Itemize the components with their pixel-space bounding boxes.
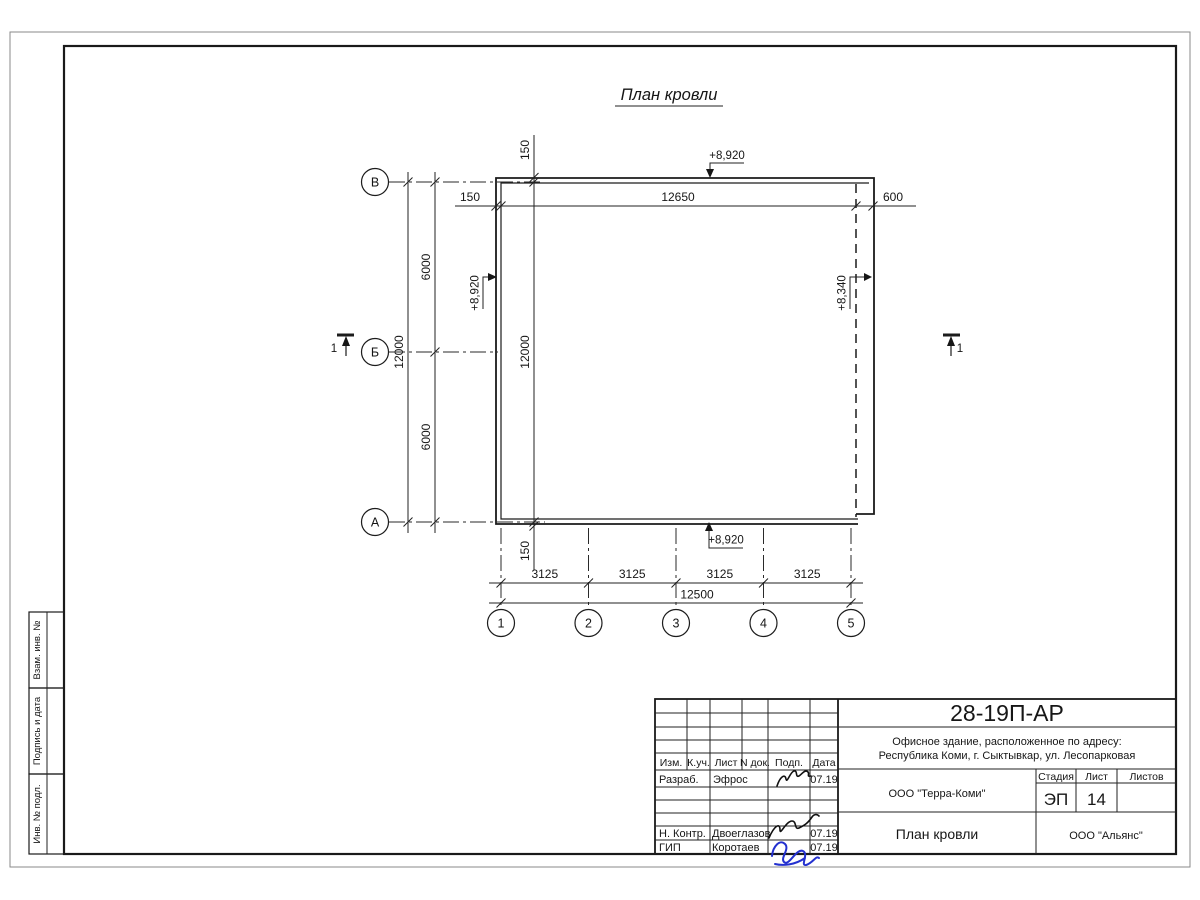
tb-name-efros: Эфрос — [713, 774, 748, 786]
tb-project-line2: Республика Коми, г. Сыктывкар, ул. Лесоп… — [879, 750, 1136, 762]
tb-org-customer: ООО "Альянс" — [1069, 830, 1143, 842]
drawing-sheet: Взам. инв. № Подпись и дата Инв. № подл.… — [0, 0, 1200, 900]
axis-label-b: Б — [371, 346, 379, 360]
dim-12000-inner: 12000 — [518, 335, 532, 369]
axis-grid-lines — [389, 182, 851, 609]
tb-date-nkontr: 07.19 — [810, 828, 838, 840]
dim-12000-total: 12000 — [392, 335, 406, 369]
title-block: Изм. К.уч. Лист N док. Подп. Дата Разраб… — [655, 699, 1176, 865]
dim-150-top: 150 — [460, 190, 480, 204]
dim-12500: 12500 — [680, 588, 714, 602]
dim-150-inner-top: 150 — [518, 140, 532, 160]
axis-label-2: 2 — [585, 617, 592, 631]
elev-leader-right — [850, 277, 867, 309]
dim-3125-3: 3125 — [706, 567, 733, 581]
axis-label-5: 5 — [848, 617, 855, 631]
roof-outline — [496, 178, 874, 524]
tb-date-gip: 07.19 — [810, 842, 838, 854]
elev-leader-top — [710, 163, 744, 176]
tb-sheets-label: Листов — [1129, 771, 1164, 783]
axis-label-1: 1 — [498, 617, 505, 631]
drawing-canvas: Взам. инв. № Подпись и дата Инв. № подл.… — [0, 0, 1200, 900]
side-label-vzam: Взам. инв. № — [32, 621, 43, 680]
tb-sheet-name: План кровли — [896, 826, 978, 842]
arrow-up-icon — [947, 336, 955, 346]
arrow-up-icon — [342, 336, 350, 346]
dim-600: 600 — [883, 190, 903, 204]
tb-doc-number: 28-19П-АР — [950, 700, 1064, 726]
elev-top: +8,920 — [709, 150, 745, 162]
tb-role-nkontr: Н. Контр. — [659, 828, 706, 840]
tb-date-razrab: 07.19 — [810, 774, 838, 786]
tb-name-dvoeglazov: Двоеглазов — [712, 828, 771, 840]
dim-line-bottom-total — [489, 599, 863, 608]
elev-leader-left — [483, 277, 492, 309]
side-attribute-boxes: Взам. инв. № Подпись и дата Инв. № подл. — [29, 612, 64, 854]
elev-right: +8,340 — [837, 275, 849, 311]
elev-bottom: +8,920 — [708, 535, 744, 547]
tb-stage-label: Стадия — [1038, 771, 1074, 783]
tb-name-korotaev: Коротаев — [712, 842, 760, 854]
axis-label-v: В — [371, 176, 379, 190]
drawing-title: План кровли — [615, 86, 723, 106]
tb-role-razrab: Разраб. — [659, 774, 699, 786]
section-marks: 1 1 — [331, 335, 963, 356]
arrow-right-icon — [864, 273, 872, 281]
inner-border — [64, 46, 1176, 854]
dim-6000-top: 6000 — [419, 253, 433, 280]
arrow-down-icon — [706, 169, 714, 178]
side-label-podpis: Подпись и дата — [32, 696, 43, 765]
plan-title: План кровли — [621, 86, 718, 104]
tb-header-kuch: К.уч. — [687, 757, 710, 769]
section-label-right: 1 — [957, 343, 963, 355]
tb-project-line1: Офисное здание, расположенное по адресу: — [892, 736, 1121, 748]
section-label-left: 1 — [331, 343, 337, 355]
dim-12650: 12650 — [661, 190, 695, 204]
tb-role-gip: ГИП — [659, 842, 681, 854]
roof-parapet-inner-line — [501, 183, 869, 519]
col-axis-bubbles: 1 2 3 4 5 — [488, 610, 865, 637]
tb-header-ndok: N док. — [740, 757, 770, 769]
dim-150-inner-bottom: 150 — [518, 541, 532, 561]
axis-label-a: А — [371, 516, 380, 530]
dim-3125-4: 3125 — [794, 567, 821, 581]
elev-left: +8,920 — [470, 275, 482, 311]
tb-sheet-value: 14 — [1087, 790, 1106, 809]
tb-header-izm: Изм. — [660, 757, 683, 769]
tb-header-podp: Подп. — [775, 757, 803, 769]
dim-3125-1: 3125 — [531, 567, 558, 581]
row-axis-bubbles: В Б А — [362, 169, 389, 536]
axis-label-3: 3 — [673, 617, 680, 631]
side-label-inv: Инв. № подл. — [32, 784, 43, 843]
dim-6000-bottom: 6000 — [419, 423, 433, 450]
tb-header-list: Лист — [715, 757, 738, 769]
tb-org-design: ООО "Терра-Коми" — [888, 788, 985, 800]
tb-header-data: Дата — [812, 757, 835, 769]
dimension-chains: 150 12650 600 150 12000 150 6000 6000 12… — [392, 135, 916, 608]
tb-stage-value: ЭП — [1044, 790, 1068, 809]
dim-3125-2: 3125 — [619, 567, 646, 581]
roof-outer-line — [496, 178, 874, 524]
tb-sheet-label: Лист — [1085, 771, 1108, 783]
signature-razrab — [777, 771, 811, 786]
axis-label-4: 4 — [760, 617, 767, 631]
